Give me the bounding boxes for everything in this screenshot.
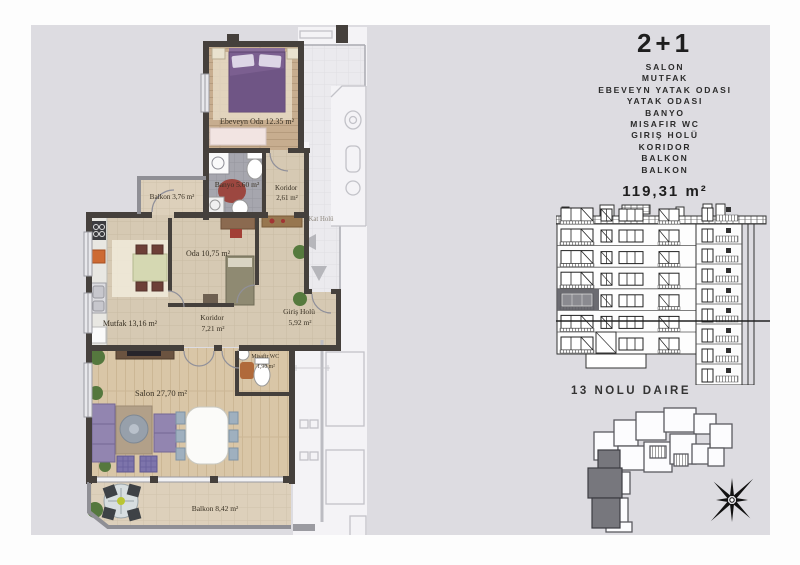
room-label-balkon-alt: Balkon 8,42 m² [192, 504, 239, 513]
room-list-item: SALON [558, 62, 772, 73]
salon-window-band [89, 476, 291, 483]
room-list-item: MISAFIR WC [558, 119, 772, 130]
room-label-line: 5,92 m² [288, 318, 312, 327]
room-label-line: 7,21 m² [201, 324, 225, 333]
room-label-salon: Salon 27,70 m² [135, 388, 187, 398]
room-label-line: Koridor [200, 313, 224, 322]
highlighted-apartment [588, 450, 622, 528]
room-list-item: BALKON [558, 165, 772, 176]
room-label-ebeveyn: Ebeveyn Oda 12.35 m² [220, 117, 295, 126]
north-star-icon [709, 477, 754, 522]
total-area: 119,31 m² [558, 183, 772, 200]
room-list-item: BALKON [558, 153, 772, 164]
building-elevation [556, 203, 770, 385]
room-label-line: Giriş Holü [283, 307, 315, 316]
dining-table [186, 407, 228, 464]
plant-icon [293, 292, 307, 306]
highlighted-unit [557, 289, 599, 311]
room-label-line: Koridor [275, 184, 298, 192]
dresser [210, 128, 266, 145]
room-label-kat-holu: Kat Holü [308, 216, 334, 223]
summary-column: 2+1 SALON MUTFAK EBEVEYN YATAK ODASI YAT… [558, 28, 772, 200]
site-plan [558, 402, 770, 534]
room-list-item: EBEVEYN YATAK ODASI [558, 85, 772, 96]
room-list-item: GIRIŞ HOLÜ [558, 130, 772, 141]
room-label-balkon-ust: Balkon 3,76 m² [150, 193, 195, 201]
unit-label: 13 NOLU DAIRE [556, 385, 706, 397]
room-list: SALON MUTFAK EBEVEYN YATAK ODASI YATAK O… [558, 62, 772, 176]
double-bed [229, 48, 285, 112]
page: Ebeveyn Oda 12.35 m² Banyo 5.60 m² Korid… [0, 0, 800, 565]
apartment-type-title: 2+1 [558, 28, 772, 58]
base-extension [586, 354, 646, 368]
room-label-line: 2,61 m² [276, 194, 298, 202]
room-label-line: Misafir WC [251, 353, 279, 360]
room-list-item: YATAK ODASI [558, 96, 772, 107]
room-list-item: MUTFAK [558, 73, 772, 84]
room-label-banyo: Banyo 5.60 m² [215, 180, 260, 189]
sofa [92, 404, 115, 462]
room-label-mutfak: Mutfak 13,16 m² [103, 319, 158, 328]
floor-plan: Ebeveyn Oda 12.35 m² Banyo 5.60 m² Korid… [31, 25, 501, 535]
ottoman [117, 456, 134, 472]
kitchen-table [112, 240, 168, 297]
room-list-item: BANYO [558, 108, 772, 119]
room-label-line: 1,90 m² [257, 364, 275, 370]
room-label-oda: Oda 10,75 m² [186, 249, 231, 258]
kitchen-counter [90, 217, 107, 348]
ottoman [140, 456, 157, 472]
room-list-item: KORIDOR [558, 142, 772, 153]
